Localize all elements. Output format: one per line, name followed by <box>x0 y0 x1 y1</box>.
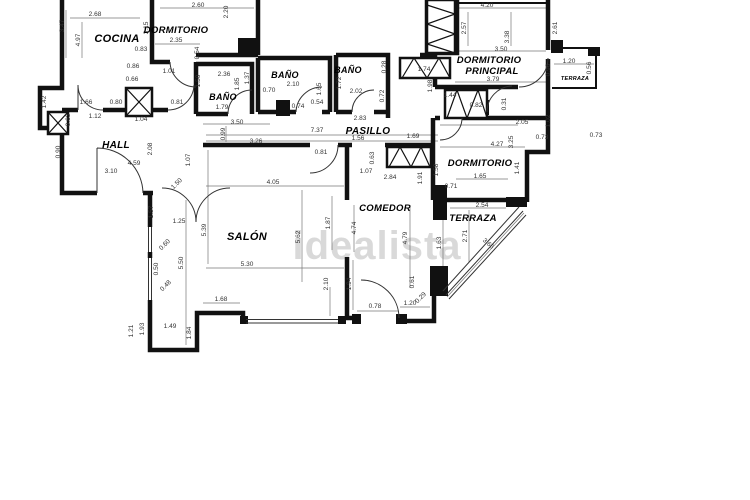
floor-plan-canvas: idealista <box>0 0 750 500</box>
dimension-label: 0.73 <box>536 134 549 141</box>
dimension-label: 0.83 <box>135 46 148 53</box>
dimension-label: 0.54 <box>311 99 324 106</box>
dimension-label: 1.37 <box>244 71 251 84</box>
dimension-label: 2.57 <box>461 21 468 34</box>
dimension-label: 2.61 <box>552 21 559 34</box>
dimension-label: 1.65 <box>316 82 323 95</box>
dimension-label: 0.90 <box>55 145 62 158</box>
dimension-label: 1.44 <box>444 92 457 99</box>
dimension-label: 4.97 <box>75 33 82 46</box>
dimension-label: 0.73 <box>590 132 603 139</box>
dimension-label: 1.93 <box>139 322 146 335</box>
dimension-label: 4.27 <box>491 141 504 148</box>
room-label: PRINCIPAL <box>465 66 518 77</box>
dimension-label: 0.78 <box>369 303 382 310</box>
dimension-label: 2.10 <box>287 81 300 88</box>
dimension-label: 1.72 <box>336 76 343 89</box>
dimension-label: 0.50 <box>153 262 160 275</box>
dimension-label: 1.42 <box>41 95 48 108</box>
dimension-label: 0.82 <box>470 102 483 109</box>
dimension-label: 0.29 <box>414 291 428 305</box>
dimension-label: 1.49 <box>164 323 177 330</box>
dimension-label: 1.25 <box>173 218 186 225</box>
dimension-label: 5.50 <box>178 256 185 269</box>
dimension-label: 0.66 <box>126 76 139 83</box>
room-label: TERRAZA <box>449 213 497 224</box>
dimension-label: 2.20 <box>223 5 230 18</box>
dimension-label: 2.10 <box>323 277 330 290</box>
dimension-label: 3.38 <box>504 30 511 43</box>
dimension-label: 0.71 <box>445 183 458 190</box>
room-label: TERRAZA <box>561 76 589 82</box>
dimension-label: 3.79 <box>487 76 500 83</box>
dimension-label: 1.69 <box>407 133 420 140</box>
dimension-label: 0.70 <box>263 87 276 94</box>
dimension-label: 0.80 <box>110 99 123 106</box>
dimension-label: 4.74 <box>351 221 358 234</box>
dimension-label: 2.05 <box>516 119 529 126</box>
dimension-label: 2.71 <box>462 229 469 242</box>
dimension-label: 1.01 <box>163 68 176 75</box>
dimension-label: 0.28 <box>381 60 388 73</box>
dimension-label: 0.31 <box>501 97 508 110</box>
dimension-label: 1.74 <box>418 66 431 73</box>
dimension-label: 3.26 <box>250 138 263 145</box>
dimension-label: 1.04 <box>135 116 148 123</box>
floor-plan: idealista <box>0 0 750 500</box>
dimension-label: 1.87 <box>325 216 332 229</box>
dimension-label: 0.54 <box>194 46 201 59</box>
dimension-label: 0.72 <box>379 89 386 102</box>
room-label: DORMITORIO <box>448 158 513 169</box>
dimension-label: 1.02 <box>545 114 552 127</box>
dimension-label: 3.10 <box>105 168 118 175</box>
dimension-label: 1.79 <box>216 104 229 111</box>
dimension-label: 2.60 <box>192 2 205 9</box>
room-labels-layer: COCINADORMITORIOBAÑOBAÑOBAÑODORMITORIOPR… <box>94 25 589 243</box>
dimension-label: 2.83 <box>354 115 367 122</box>
dimension-label: 0.99 <box>220 127 227 140</box>
dimension-label: 4.05 <box>267 179 280 186</box>
dimension-label: 1.66 <box>80 99 93 106</box>
room-label: SALÓN <box>227 230 268 243</box>
room-label: BAÑO <box>209 92 237 102</box>
dimension-label: 5.39 <box>201 223 208 236</box>
dimension-label: 1.94 <box>346 277 353 290</box>
dimension-label: 1.12 <box>89 113 102 120</box>
dimension-label: 5.30 <box>241 261 254 268</box>
room-label: BAÑO <box>271 70 299 80</box>
dimension-label: 1.98 <box>427 79 434 92</box>
dimension-label: 2.54 <box>476 202 489 209</box>
dimension-label: 1.91 <box>417 171 424 184</box>
dimension-label: 1.58 <box>433 163 440 176</box>
dimension-label: 1.21 <box>128 324 135 337</box>
room-label: COMEDOR <box>359 203 411 214</box>
dimension-label: 3.25 <box>508 135 515 148</box>
dimension-label: 1.65 <box>474 173 487 180</box>
dimension-label: 2.36 <box>218 71 231 78</box>
dimension-label: 3.50 <box>231 119 244 126</box>
dimension-label: 0.74 <box>292 103 305 110</box>
dimension-label: 2.35 <box>170 37 183 44</box>
dimension-label: 0.63 <box>369 151 376 164</box>
dimension-label: 7.37 <box>311 127 324 134</box>
dimension-label: 1.84 <box>186 326 193 339</box>
room-label: DORMITORIO <box>144 25 209 36</box>
room-label: BAÑO <box>334 65 362 75</box>
dimension-label: 4.79 <box>402 231 409 244</box>
dimension-label: 2.08 <box>147 142 154 155</box>
dimension-label: 3.50 <box>495 46 508 53</box>
dimension-label: 0.81 <box>171 99 184 106</box>
dimension-label: 4.20 <box>481 2 494 9</box>
dimension-label: 1.50 <box>170 177 184 191</box>
dimension-label: 1.07 <box>185 153 192 166</box>
dimension-label: 4.59 <box>128 160 141 167</box>
room-label: PASILLO <box>346 126 391 137</box>
dimension-label: 1.41 <box>514 161 521 174</box>
dimension-label: 1.57 <box>148 205 155 218</box>
dimension-label: 0.56 <box>586 61 593 74</box>
dimension-label: 0.48 <box>159 279 173 293</box>
dimension-label: 0.86 <box>127 63 140 70</box>
room-label: DORMITORIO <box>457 55 522 66</box>
dimension-label: 0.60 <box>158 238 172 252</box>
room-label: COCINA <box>94 33 139 45</box>
dimension-label: 1.85 <box>234 77 241 90</box>
dimension-label: 2.84 <box>384 174 397 181</box>
dimension-label: 0.63 <box>65 113 72 126</box>
dimension-label: 2.02 <box>350 88 363 95</box>
room-label: HALL <box>102 140 130 151</box>
dimension-label: 1.07 <box>360 168 373 175</box>
dimension-label: 5.62 <box>295 230 302 243</box>
dimension-label: 0.81 <box>315 149 328 156</box>
dimension-label: 0.61 <box>409 275 416 288</box>
dimension-label: 1.63 <box>436 236 443 249</box>
dimension-label: 1.50 <box>195 74 202 87</box>
dimension-label: 3.47 <box>59 19 66 32</box>
dimension-label: 2.68 <box>89 11 102 18</box>
dimension-label: 1.68 <box>215 296 228 303</box>
dimension-label: 1.20 <box>563 58 576 65</box>
dimension-label: 0.96 <box>545 63 552 76</box>
